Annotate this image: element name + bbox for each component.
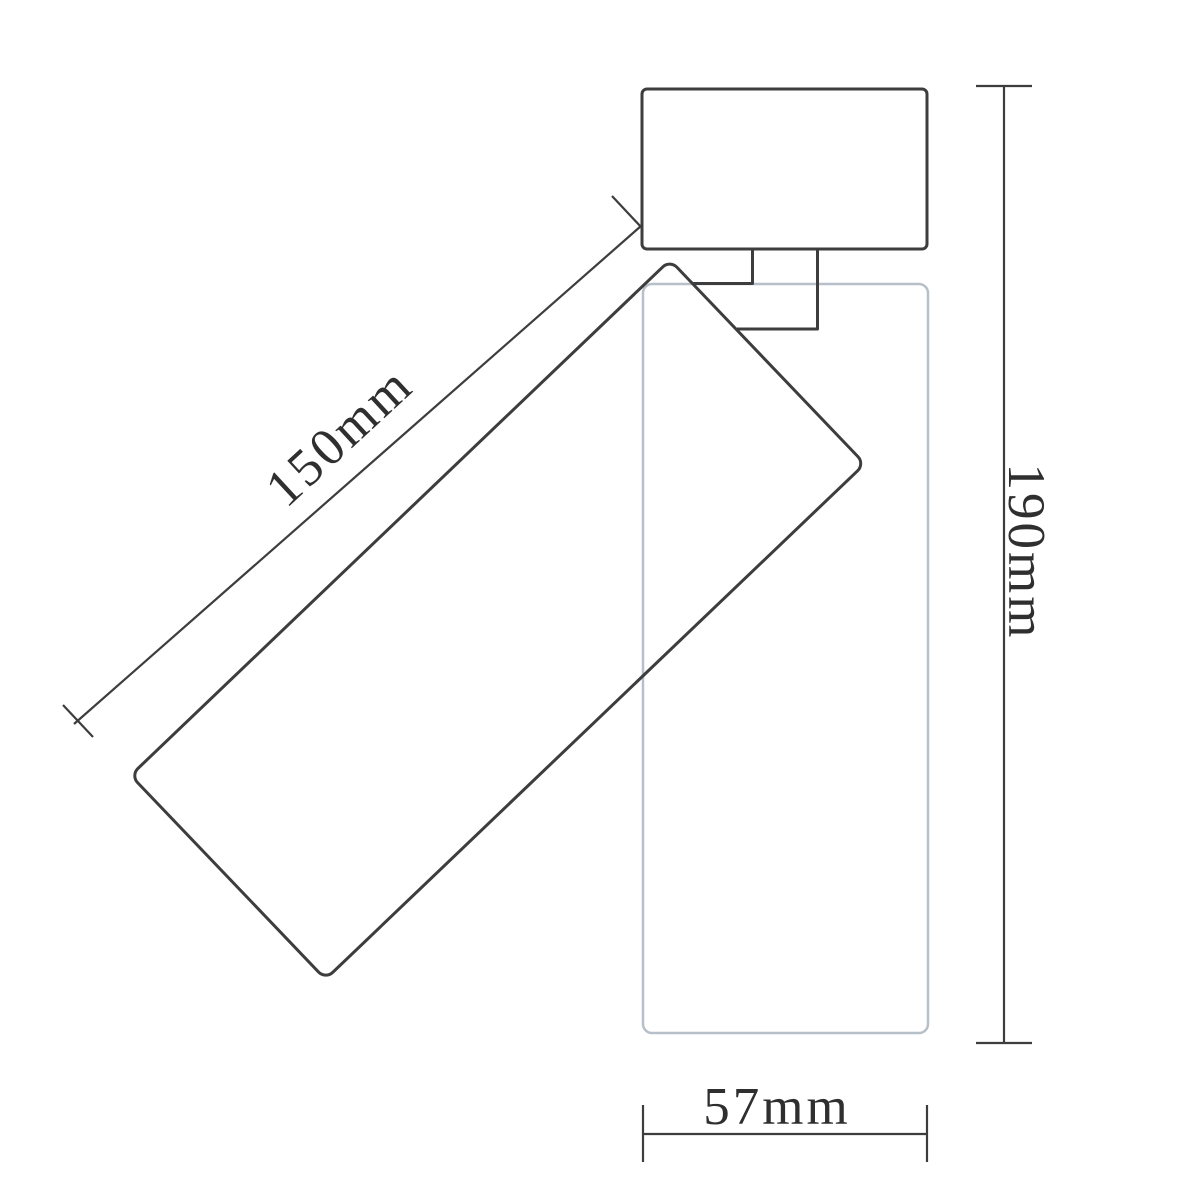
mount-group	[642, 89, 927, 329]
bracket-arm-left	[693, 250, 753, 284]
drawing-page: 150mm 190mm 57mm	[0, 0, 1200, 1200]
dim-150-group	[63, 196, 642, 737]
ghost-lamp-body-outline	[643, 284, 928, 1033]
ghost-lamp-group	[643, 284, 928, 1033]
lamp-body-tilted	[131, 260, 865, 979]
dim-150-tick-end	[612, 196, 642, 228]
dim-57-label: 57mm	[703, 1078, 850, 1136]
dim-150-label: 150mm	[255, 355, 424, 518]
dimension-drawing: 150mm 190mm 57mm	[0, 0, 1200, 1200]
dim-190-label: 190mm	[997, 464, 1055, 641]
dim-150-line	[74, 226, 641, 724]
lamp-group	[131, 260, 865, 979]
bracket-arm-right	[737, 250, 818, 329]
dim-150-tick-start	[63, 705, 93, 737]
mount-box	[642, 89, 927, 249]
